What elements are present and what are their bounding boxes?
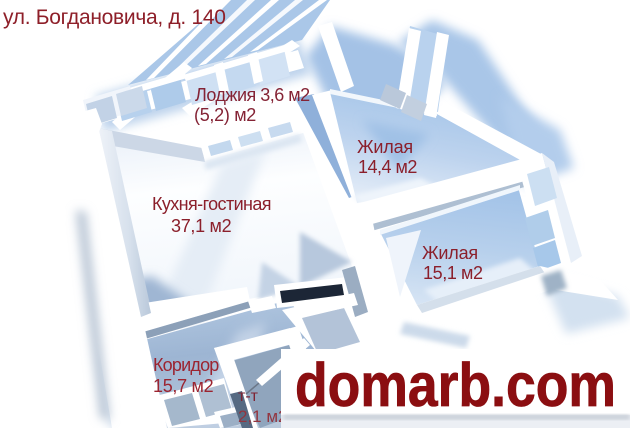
svg-text:Лоджия 3,6 м2: Лоджия 3,6 м2 <box>195 85 310 105</box>
svg-text:ул. Богдановича, д. 140: ул. Богдановича, д. 140 <box>3 6 226 29</box>
svg-text:Жилая: Жилая <box>422 243 478 263</box>
svg-text:15,1 м2: 15,1 м2 <box>423 263 483 283</box>
svg-text:Коридор: Коридор <box>153 355 219 375</box>
svg-text:т-т: т-т <box>238 388 259 405</box>
svg-text:14,4 м2: 14,4 м2 <box>358 157 417 177</box>
svg-text:2,1 м2: 2,1 м2 <box>238 407 288 426</box>
svg-text:(5,2) м2: (5,2) м2 <box>194 105 256 125</box>
svg-text:domarb.com: domarb.com <box>295 352 616 420</box>
svg-text:Жилая: Жилая <box>357 137 413 157</box>
svg-text:Кухня-гостиная: Кухня-гостиная <box>152 194 271 214</box>
svg-text:15,7 м2: 15,7 м2 <box>153 376 214 396</box>
svg-text:37,1 м2: 37,1 м2 <box>171 216 232 236</box>
